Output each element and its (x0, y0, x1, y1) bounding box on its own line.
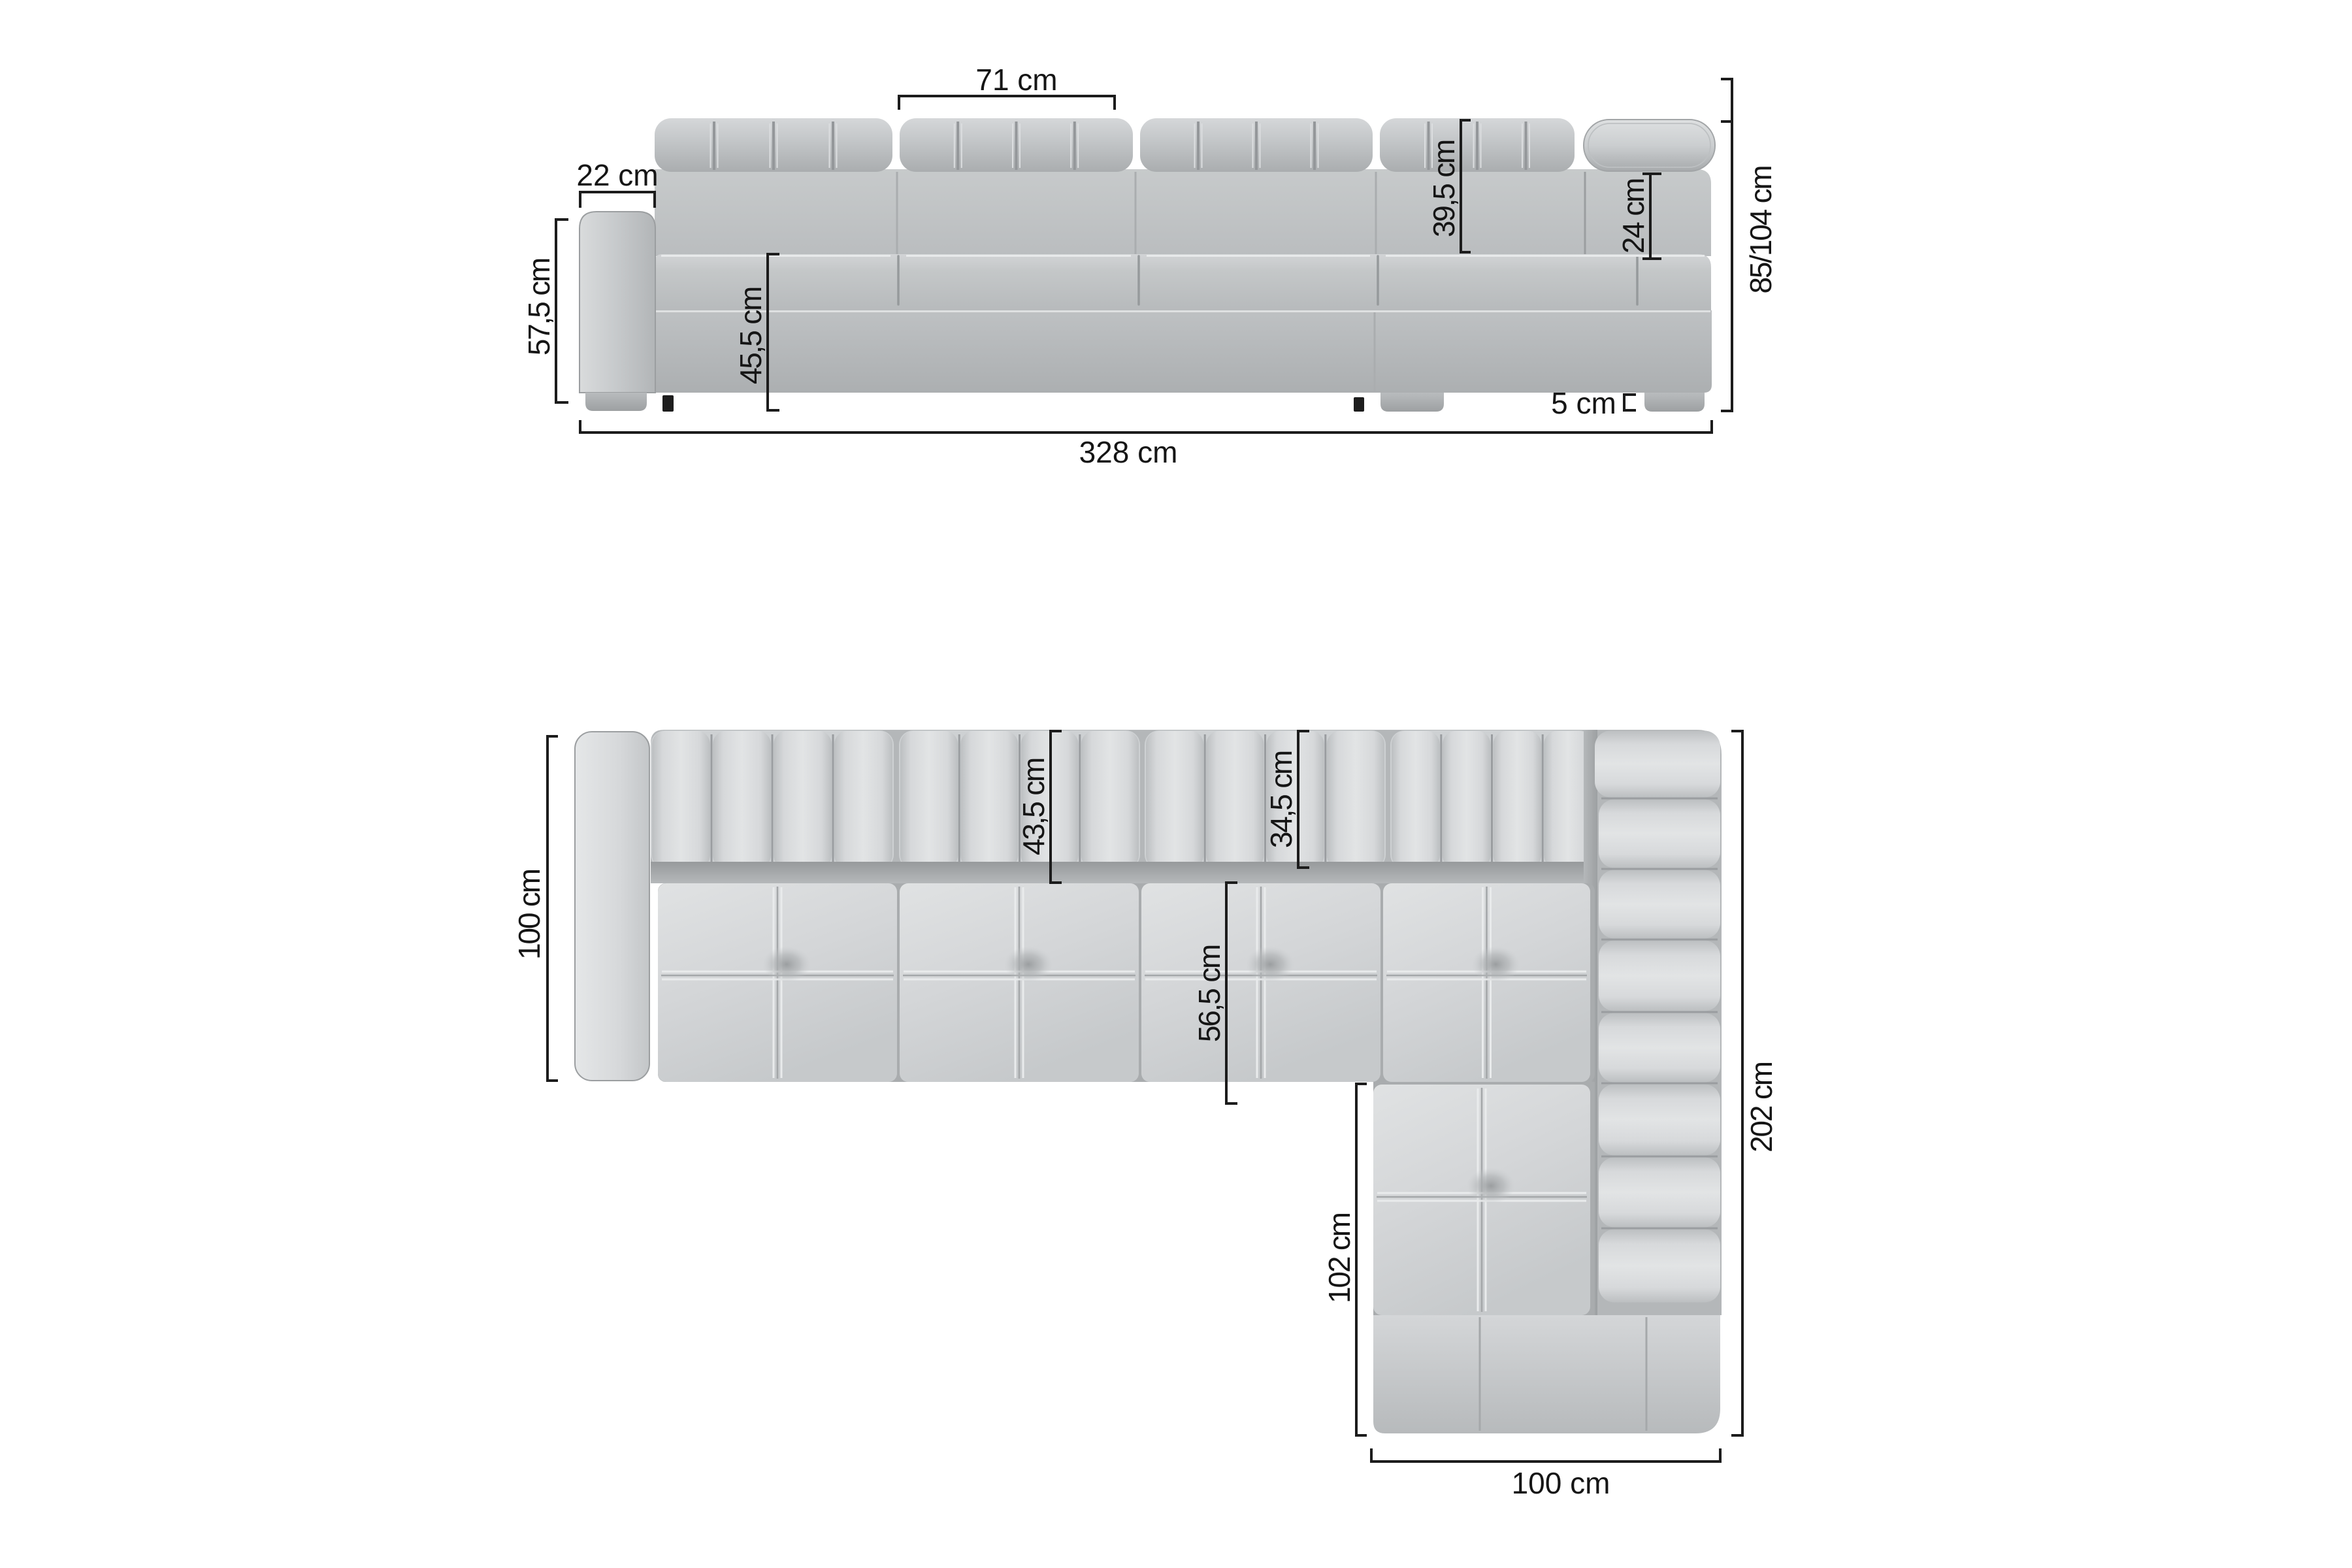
svg-text:57,5 cm: 57,5 cm (522, 259, 556, 355)
svg-text:24 cm: 24 cm (1616, 179, 1650, 253)
svg-text:39,5 cm: 39,5 cm (1427, 140, 1461, 237)
svg-text:43,5 cm: 43,5 cm (1017, 759, 1051, 855)
svg-text:71 cm: 71 cm (975, 63, 1057, 97)
svg-text:85/104 cm: 85/104 cm (1744, 167, 1778, 294)
svg-text:100 cm: 100 cm (1512, 1466, 1610, 1500)
svg-text:56,5 cm: 56,5 cm (1192, 945, 1226, 1042)
svg-text:34,5 cm: 34,5 cm (1264, 751, 1298, 848)
svg-text:328 cm: 328 cm (1079, 435, 1178, 469)
svg-text:22 cm: 22 cm (576, 158, 658, 192)
svg-text:45,5 cm: 45,5 cm (734, 287, 768, 384)
svg-text:5 cm: 5 cm (1551, 386, 1616, 420)
svg-text:100 cm: 100 cm (512, 870, 546, 960)
svg-text:102 cm: 102 cm (1322, 1213, 1356, 1303)
svg-text:202 cm: 202 cm (1744, 1062, 1778, 1152)
